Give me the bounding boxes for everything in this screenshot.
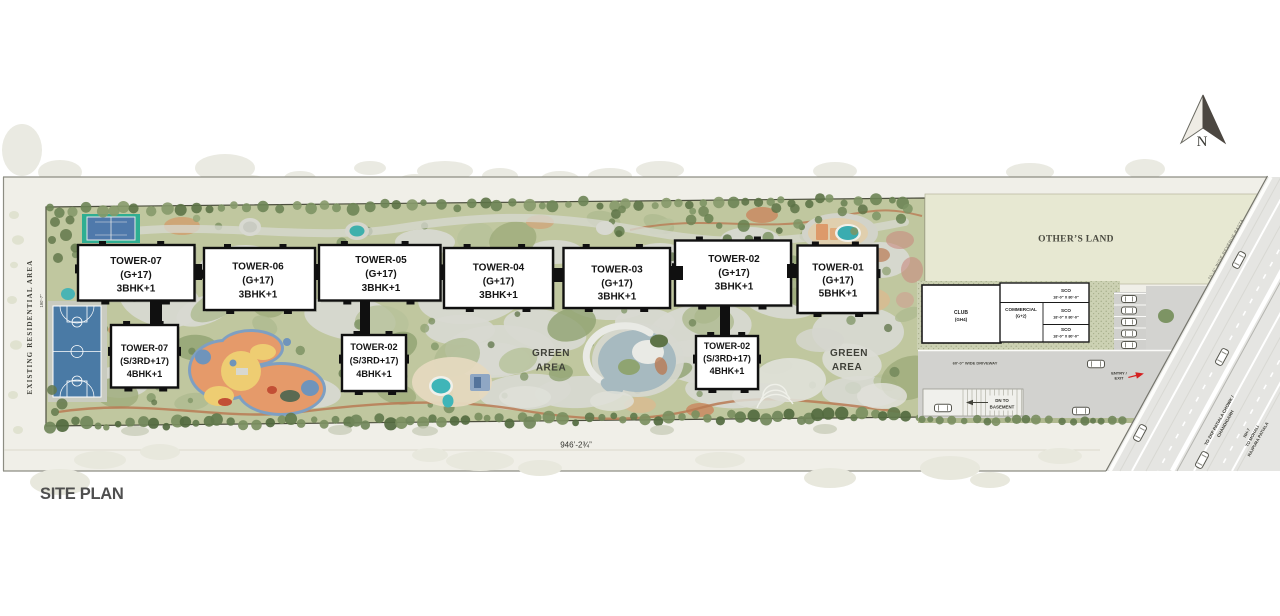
svg-text:AREA: AREA <box>832 362 862 373</box>
svg-text:SITE PLAN: SITE PLAN <box>40 485 123 503</box>
svg-text:4BHK+1: 4BHK+1 <box>356 369 392 379</box>
svg-text:BASEMENT: BASEMENT <box>990 405 1015 410</box>
svg-text:(G+17): (G+17) <box>601 279 632 290</box>
svg-text:EXISTING RESIDENTIAL AREA: EXISTING RESIDENTIAL AREA <box>26 259 34 394</box>
svg-text:TOWER-02: TOWER-02 <box>350 342 397 352</box>
svg-text:(G+17): (G+17) <box>120 270 151 281</box>
svg-text:60’-0” WIDE DRIVEWAY: 60’-0” WIDE DRIVEWAY <box>953 361 998 366</box>
svg-text:SCO: SCO <box>1061 288 1071 293</box>
svg-text:GREEN: GREEN <box>532 348 570 359</box>
svg-text:SCO: SCO <box>1061 308 1071 313</box>
svg-text:TOWER-02: TOWER-02 <box>708 254 760 265</box>
svg-text:3BHK+1: 3BHK+1 <box>362 283 401 294</box>
svg-text:3BHK+1: 3BHK+1 <box>715 282 754 293</box>
svg-text:4BHK+1: 4BHK+1 <box>127 369 163 379</box>
svg-text:18’-0” X 80’-0”: 18’-0” X 80’-0” <box>1053 316 1079 320</box>
svg-text:3BHK+1: 3BHK+1 <box>479 290 518 301</box>
svg-text:TOWER-04: TOWER-04 <box>473 263 525 274</box>
svg-text:SCO: SCO <box>1061 327 1071 332</box>
svg-text:(G+17): (G+17) <box>822 276 853 287</box>
svg-text:TOWER-05: TOWER-05 <box>355 255 407 266</box>
svg-text:OTHER’S LAND: OTHER’S LAND <box>1038 235 1114 245</box>
svg-text:(G+17): (G+17) <box>483 277 514 288</box>
svg-text:COMMERCIAL: COMMERCIAL <box>1005 307 1037 312</box>
svg-text:18’-0” X 80’-0”: 18’-0” X 80’-0” <box>1053 296 1079 300</box>
svg-text:3BHK+1: 3BHK+1 <box>598 292 637 303</box>
svg-text:TOWER-07: TOWER-07 <box>121 343 168 353</box>
svg-text:(G+17): (G+17) <box>718 268 749 279</box>
svg-text:TOWER-06: TOWER-06 <box>232 262 284 273</box>
svg-text:4BHK+1: 4BHK+1 <box>710 366 745 376</box>
svg-text:3BHK+1: 3BHK+1 <box>239 289 278 300</box>
svg-text:TOWER-02: TOWER-02 <box>704 341 750 351</box>
svg-text:N: N <box>1197 134 1208 150</box>
svg-text:18’-0” X 80’-0”: 18’-0” X 80’-0” <box>1053 335 1079 339</box>
svg-text:EXIT: EXIT <box>1115 376 1124 381</box>
svg-text:(G+17): (G+17) <box>242 276 273 287</box>
svg-text:TOWER-03: TOWER-03 <box>591 265 643 276</box>
svg-text:GREEN: GREEN <box>830 348 868 359</box>
svg-text:CLUB: CLUB <box>954 310 968 316</box>
svg-text:(S/3RD+17): (S/3RD+17) <box>350 356 399 366</box>
svg-text:(G+2): (G+2) <box>1016 314 1027 319</box>
svg-text:5BHK+1: 5BHK+1 <box>819 289 858 300</box>
svg-text:(G+17): (G+17) <box>365 269 396 280</box>
svg-text:3BHK+1: 3BHK+1 <box>117 284 156 295</box>
svg-text:(S/3RD+17): (S/3RD+17) <box>703 354 751 364</box>
svg-text:(S/3RD+17): (S/3RD+17) <box>120 356 169 366</box>
svg-text:946’-2¾”: 946’-2¾” <box>560 441 592 450</box>
svg-text:190’-7”: 190’-7” <box>39 294 44 308</box>
svg-text:DN TO: DN TO <box>995 398 1009 403</box>
svg-text:TOWER-01: TOWER-01 <box>812 263 864 274</box>
svg-text:AREA: AREA <box>536 363 566 374</box>
svg-text:TOWER-07: TOWER-07 <box>110 256 162 267</box>
svg-text:(GH4): (GH4) <box>955 317 968 322</box>
